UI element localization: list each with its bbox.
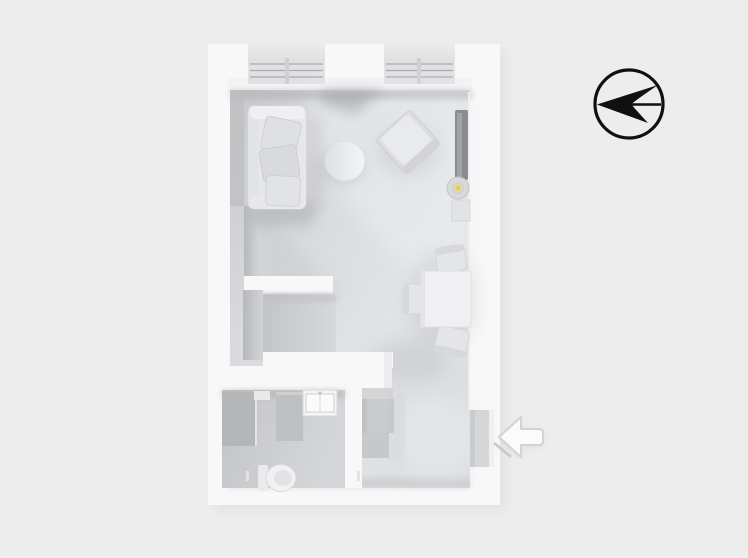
dining-chair-top — [434, 244, 468, 275]
toilet-seat-inner — [274, 470, 292, 486]
bath-partition-top-edge — [276, 392, 303, 395]
tv-screen-highlight — [457, 113, 462, 177]
media-cabinet — [452, 200, 470, 221]
lamp-bulb — [456, 186, 461, 191]
right-wall-inner-edge — [468, 92, 470, 410]
niche-floor-shadow — [263, 294, 336, 302]
bathroom-top-wall — [208, 366, 348, 392]
bottom-wall — [208, 486, 500, 505]
shower-shelf — [254, 391, 270, 400]
floor-lamp — [447, 177, 469, 199]
sofa-pillow — [265, 175, 300, 206]
dining-table — [421, 271, 471, 327]
counter-top — [244, 276, 333, 292]
hall-cabinet-lower — [362, 433, 389, 458]
left-wall-face — [230, 92, 244, 206]
railing-post — [417, 58, 421, 84]
shower — [222, 392, 256, 446]
wardrobe-side-face — [384, 352, 392, 388]
shower-glass-edge — [255, 392, 257, 446]
window-right — [384, 58, 455, 84]
vanity-sink — [303, 390, 337, 416]
window-left — [248, 58, 325, 84]
pillar-top-right — [455, 44, 500, 78]
sink-tap — [318, 391, 321, 394]
chair-backrest — [403, 284, 409, 314]
door-handle-mark-right — [357, 471, 360, 481]
niche-floor — [263, 294, 336, 354]
tv-panel — [455, 110, 468, 180]
toilet — [258, 465, 296, 492]
cabinet-shadow — [393, 392, 402, 462]
door-handle-mark-left — [246, 471, 249, 481]
coffee-table — [325, 141, 365, 181]
hall-cabinet-upper-face — [362, 399, 367, 433]
floor-plan-viewer — [0, 0, 748, 558]
sofa — [248, 106, 306, 209]
floor-plan — [208, 44, 511, 505]
door-frame-strip — [489, 410, 494, 467]
bathroom — [208, 366, 362, 492]
niche-wall — [243, 290, 263, 360]
sofa-armrest-top — [250, 106, 304, 119]
wardrobe-step — [362, 388, 393, 399]
bath-partition — [276, 392, 303, 441]
pillar-top-middle — [325, 44, 384, 78]
dining-table-edge — [421, 271, 425, 327]
railing-post — [285, 58, 289, 84]
pillar-top-left — [208, 44, 248, 78]
door-threshold-shadow — [470, 410, 475, 467]
